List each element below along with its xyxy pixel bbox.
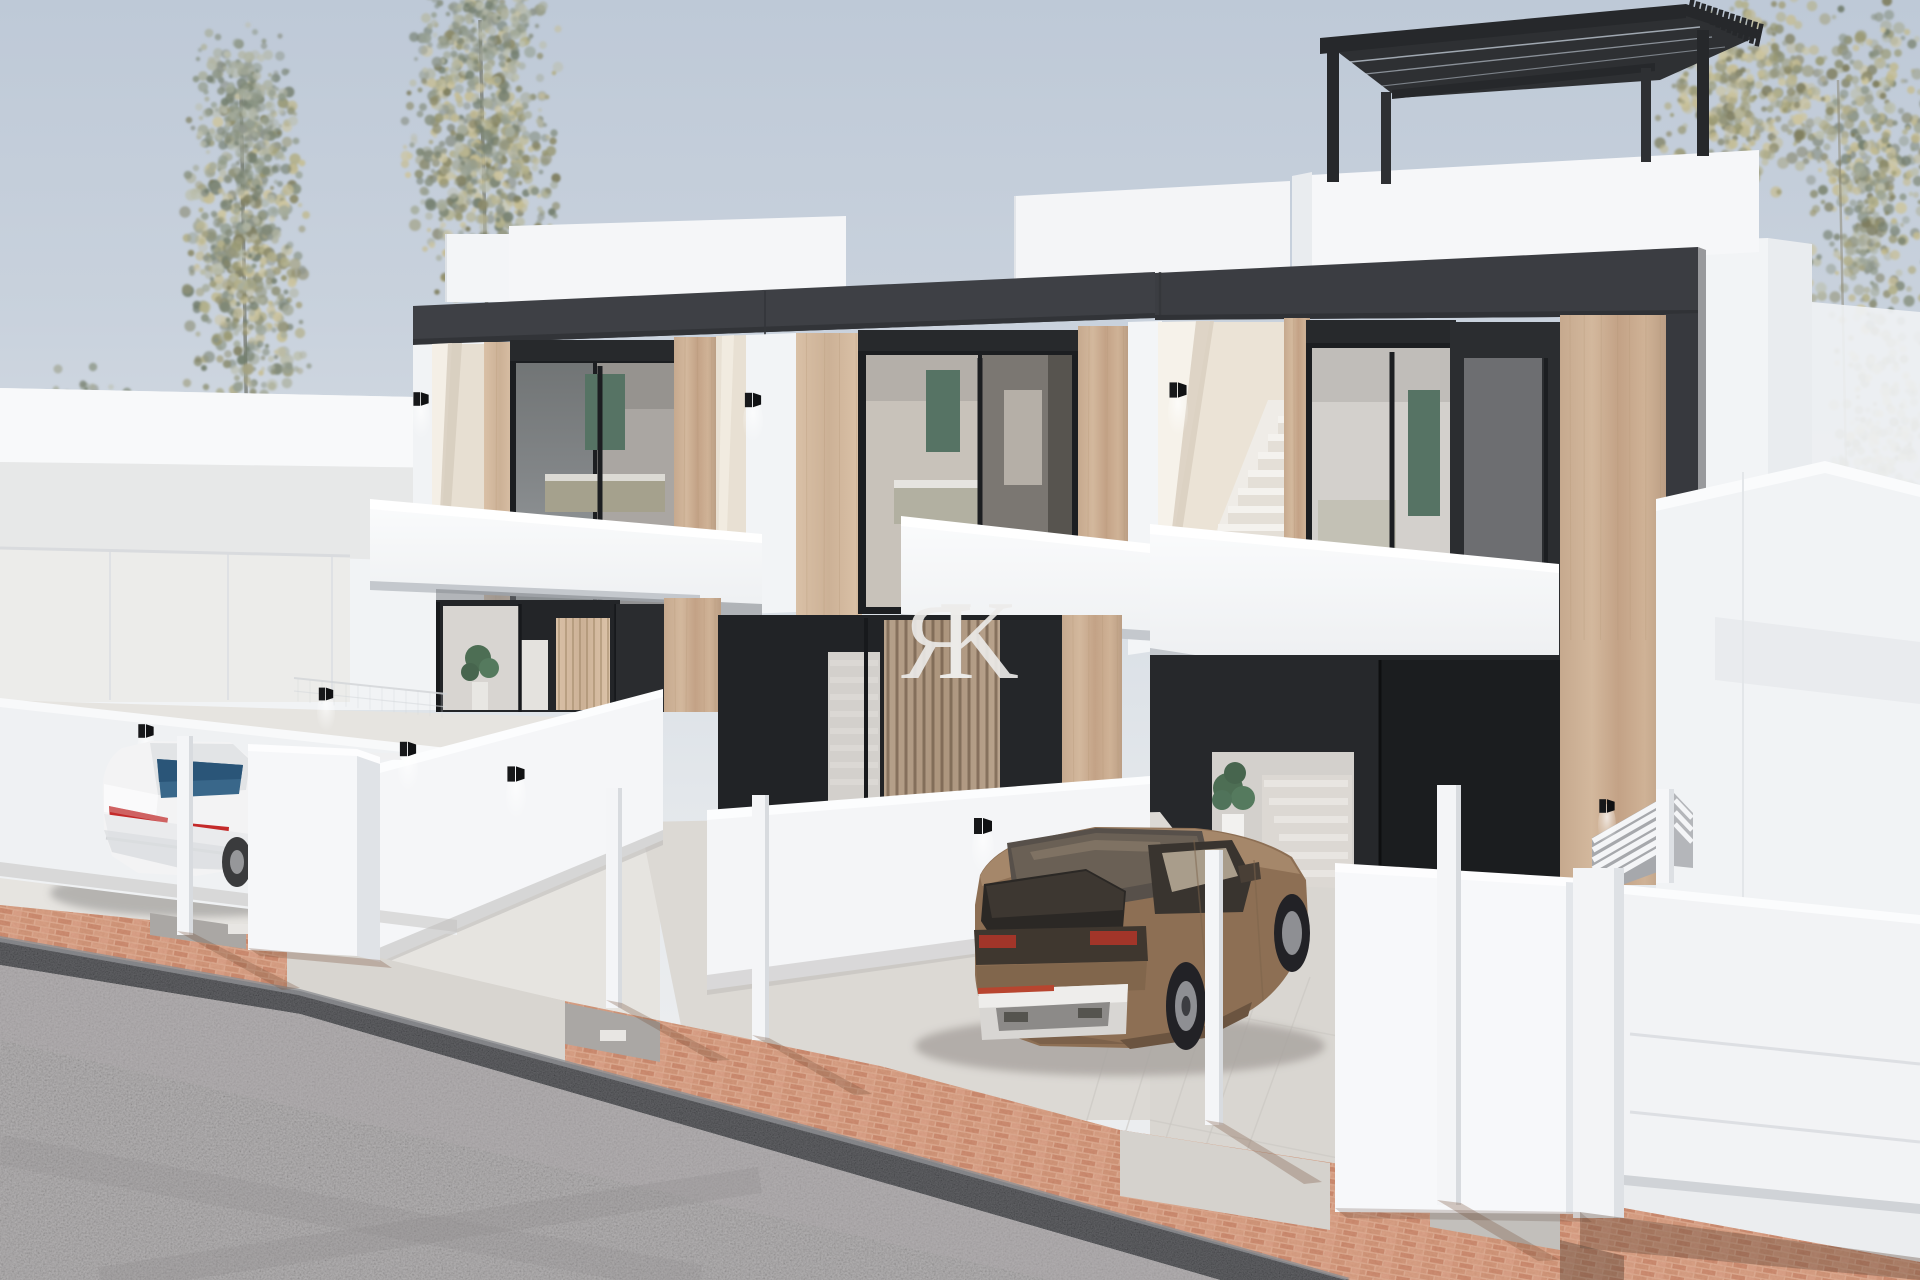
svg-text:K: K [938, 579, 1019, 703]
